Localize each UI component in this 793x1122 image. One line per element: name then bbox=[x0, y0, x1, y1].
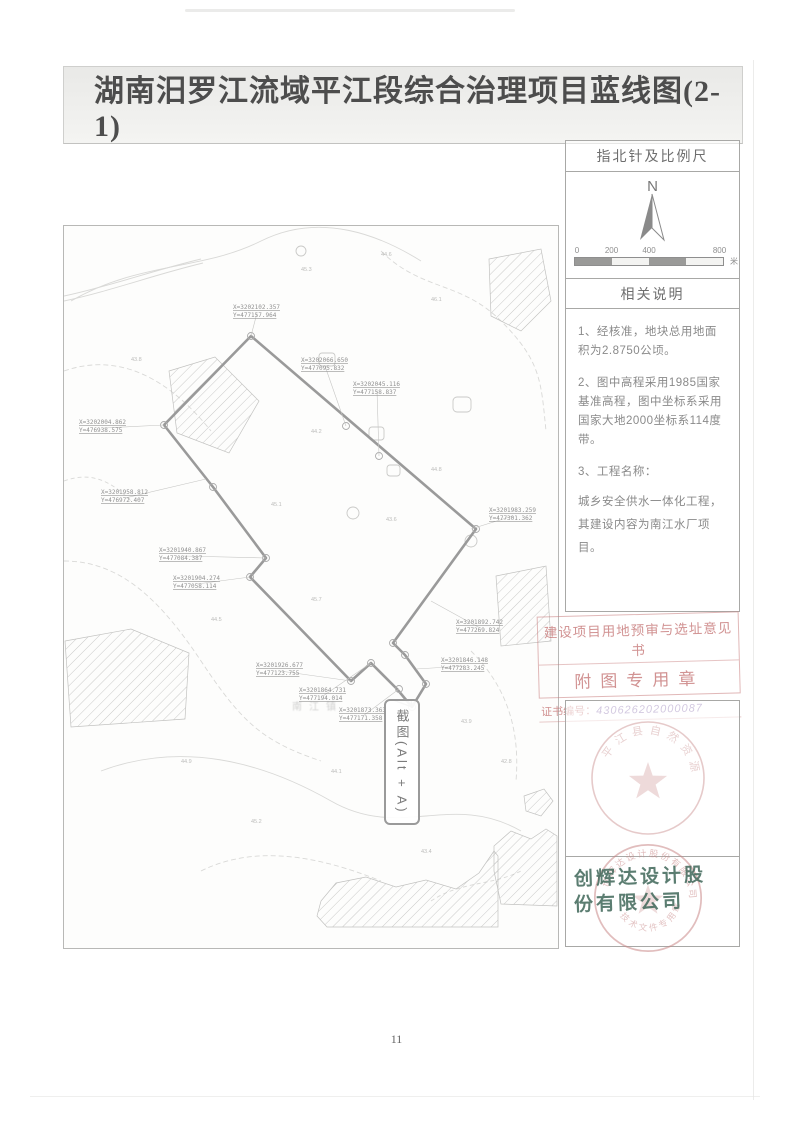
spot-elevation: 44.8 bbox=[431, 467, 442, 473]
notes-header: 相关说明 bbox=[565, 278, 740, 309]
coordinate-label: X=3201958.812 bbox=[101, 489, 148, 496]
spot-elevation: 44.9 bbox=[181, 759, 192, 765]
compass-header-label: 指北针及比例尺 bbox=[597, 146, 709, 166]
coordinate-label: Y=477058.114 bbox=[173, 583, 217, 590]
page-title: 湖南汨罗江流域平江段综合治理项目蓝线图(2-1) bbox=[94, 66, 742, 144]
spot-elevation: 43.4 bbox=[421, 849, 432, 855]
approval-line1: 建设项目用地预审与选址意见书 bbox=[538, 612, 739, 664]
scale-bar-segments bbox=[574, 257, 724, 266]
coordinate-label: X=3201983.259 bbox=[489, 507, 536, 514]
coordinate-label: X=3201892.742 bbox=[456, 619, 503, 626]
page-edge-line bbox=[753, 60, 754, 1100]
spot-elevation: 45.2 bbox=[251, 819, 262, 825]
scale-tick: 400 bbox=[642, 246, 655, 255]
scan-artifact bbox=[185, 9, 515, 12]
coordinate-label: X=3202102.357 bbox=[233, 304, 280, 311]
government-seal-icon: 平江县自然资源局 bbox=[588, 718, 708, 838]
note-1: 1、经核准，地块总用地面积为2.8750公顷。 bbox=[578, 323, 727, 361]
coordinate-label: X=3201904.274 bbox=[173, 575, 220, 582]
spot-elevation: 44.2 bbox=[311, 429, 322, 435]
map-area: X=3202102.357Y=477157.964X=3202066.650Y=… bbox=[63, 225, 559, 949]
contour-lines bbox=[64, 227, 546, 901]
spot-elevation: 44.1 bbox=[331, 769, 342, 775]
page-number: 11 bbox=[0, 1032, 793, 1047]
compass-header: 指北针及比例尺 bbox=[565, 140, 740, 172]
coordinate-label: X=3201846.148 bbox=[441, 657, 488, 664]
scale-bar: 0 200 400 800 米 bbox=[574, 246, 724, 266]
scanned-page: 湖南汨罗江流域平江段综合治理项目蓝线图(2-1) bbox=[0, 0, 793, 1122]
scale-tick: 800 bbox=[713, 246, 726, 255]
coordinate-label: Y=477171.358 bbox=[339, 715, 383, 722]
spot-elevation: 45.3 bbox=[301, 267, 312, 273]
notes-box: 1、经核准，地块总用地面积为2.8750公顷。 2、图中高程采用1985国家基准… bbox=[565, 308, 740, 612]
company-name-line2: 份有限公司 bbox=[574, 886, 685, 917]
coordinate-label: X=3201926.677 bbox=[256, 662, 303, 669]
spot-elevation: 42.8 bbox=[501, 759, 512, 765]
company-name-line1: 创辉达设计股 bbox=[574, 860, 707, 892]
coordinate-label: Y=477095.832 bbox=[301, 365, 345, 372]
spot-elevation: 44.6 bbox=[381, 252, 392, 258]
note-4: 城乡安全供水一体化工程，其建设内容为南江水厂项目。 bbox=[578, 491, 727, 560]
title-band: 湖南汨罗江流域平江段综合治理项目蓝线图(2-1) bbox=[63, 66, 743, 144]
coordinate-label: Y=477123.755 bbox=[256, 670, 300, 677]
coordinate-label: Y=477269.824 bbox=[456, 627, 500, 634]
coordinate-label: Y=477084.387 bbox=[159, 555, 203, 562]
scale-tick: 200 bbox=[605, 246, 618, 255]
map-drawing: X=3202102.357Y=477157.964X=3202066.650Y=… bbox=[64, 226, 558, 948]
note-2: 2、图中高程采用1985国家基准高程，图中坐标系采用国家大地2000坐标系114… bbox=[578, 374, 727, 450]
coordinate-label: Y=476972.407 bbox=[101, 497, 145, 504]
coordinate-label: X=3201940.867 bbox=[159, 547, 206, 554]
coordinate-label: X=3202045.116 bbox=[353, 381, 400, 388]
coordinate-label: Y=477157.964 bbox=[233, 312, 277, 319]
spot-elevation: 43.6 bbox=[386, 517, 397, 523]
spot-elevation: 45.1 bbox=[271, 502, 282, 508]
scale-tick: 0 bbox=[575, 246, 579, 255]
area-label: 南江镇 bbox=[292, 698, 343, 713]
coordinate-label: Y=477283.245 bbox=[441, 665, 485, 672]
spot-elevation: 43.9 bbox=[461, 719, 472, 725]
coordinate-label: Y=476938.575 bbox=[79, 427, 123, 434]
page-edge-line bbox=[30, 1096, 760, 1097]
coordinate-label: Y=477301.362 bbox=[489, 515, 533, 522]
spot-elevation: 45.7 bbox=[311, 597, 322, 603]
note-3: 3、工程名称： bbox=[578, 463, 727, 482]
screenshot-button[interactable]: 截图(Alt + A) bbox=[384, 699, 420, 825]
coordinate-label: X=3201873.363 bbox=[339, 707, 386, 714]
approval-line2: 附图专用章 bbox=[539, 659, 740, 697]
spot-elevation: 43.8 bbox=[131, 357, 142, 363]
spot-elevation: 44.5 bbox=[211, 617, 222, 623]
coordinate-label: Y=477158.837 bbox=[353, 389, 397, 396]
compass-box: N 0 200 400 800 米 bbox=[565, 171, 740, 279]
coordinate-label: X=3201864.731 bbox=[299, 687, 346, 694]
coordinate-label: X=3202004.862 bbox=[79, 419, 126, 426]
scale-unit: 米 bbox=[730, 256, 738, 267]
coordinate-label: X=3202066.650 bbox=[301, 357, 348, 364]
spot-elevation: 46.1 bbox=[431, 297, 442, 303]
notes-header-label: 相关说明 bbox=[621, 284, 685, 304]
